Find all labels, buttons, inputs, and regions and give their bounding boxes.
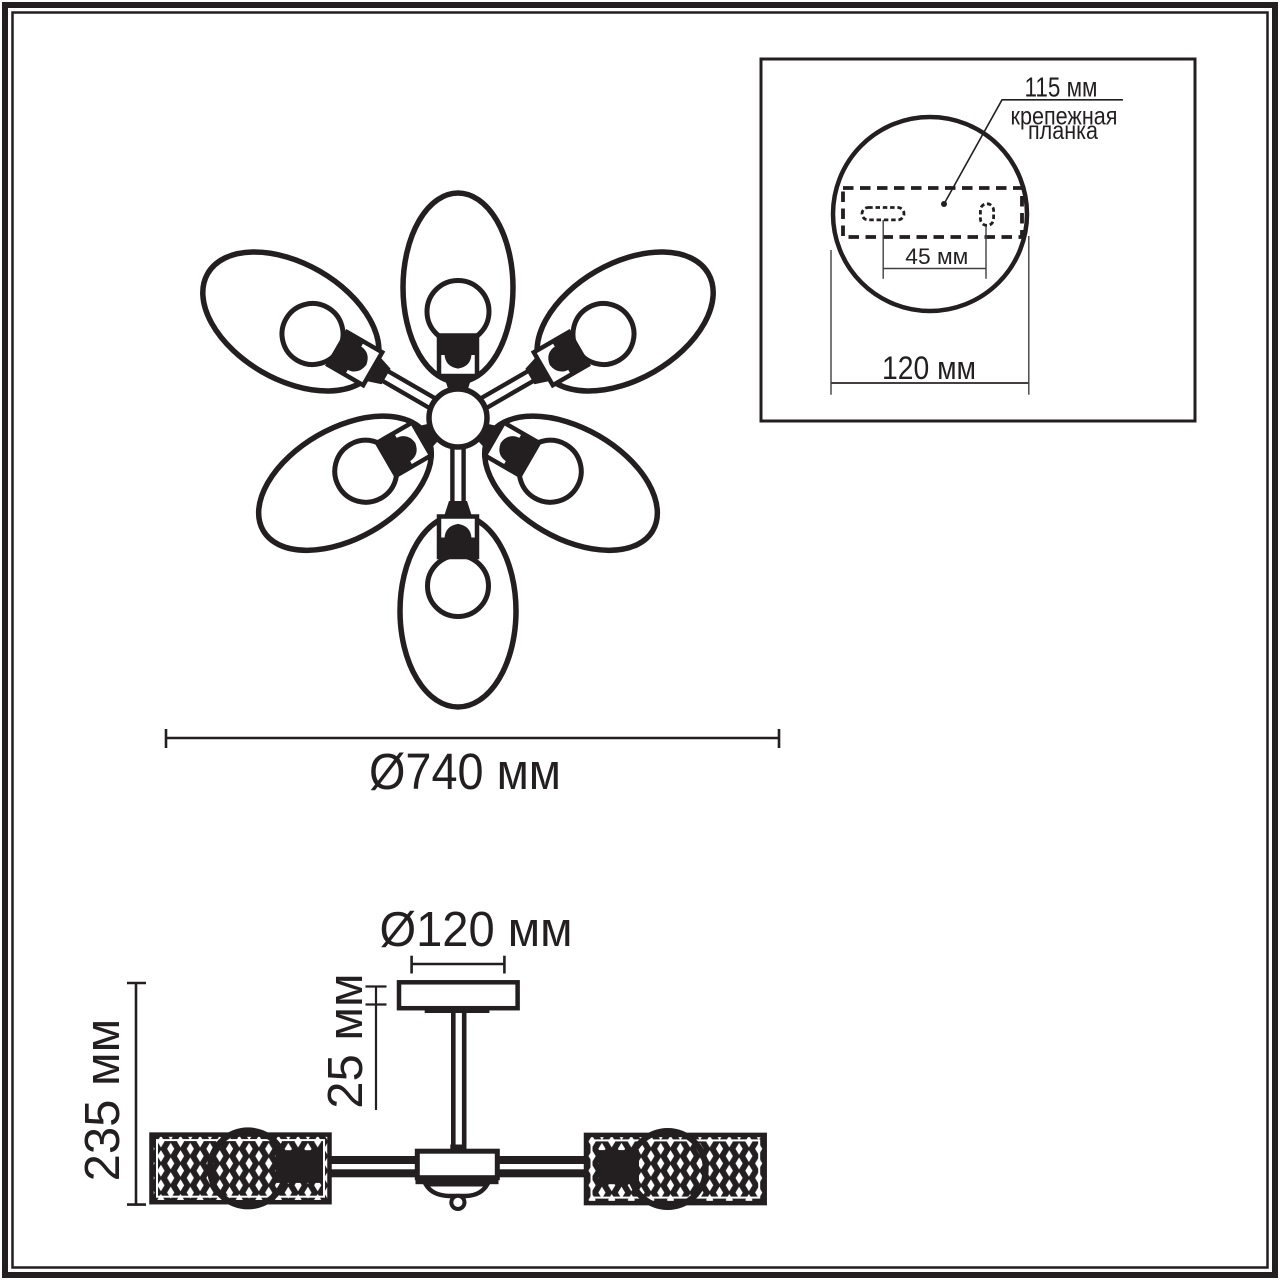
svg-text:планка: планка	[1028, 117, 1098, 145]
svg-text:25 мм: 25 мм	[319, 973, 373, 1109]
svg-text:Ø740 мм: Ø740 мм	[369, 743, 561, 800]
svg-text:115 мм: 115 мм	[1025, 72, 1098, 103]
svg-text:120 мм: 120 мм	[882, 350, 976, 386]
svg-text:45 мм: 45 мм	[905, 244, 968, 269]
svg-text:235 мм: 235 мм	[76, 1019, 130, 1182]
svg-text:Ø120 мм: Ø120 мм	[380, 903, 573, 957]
